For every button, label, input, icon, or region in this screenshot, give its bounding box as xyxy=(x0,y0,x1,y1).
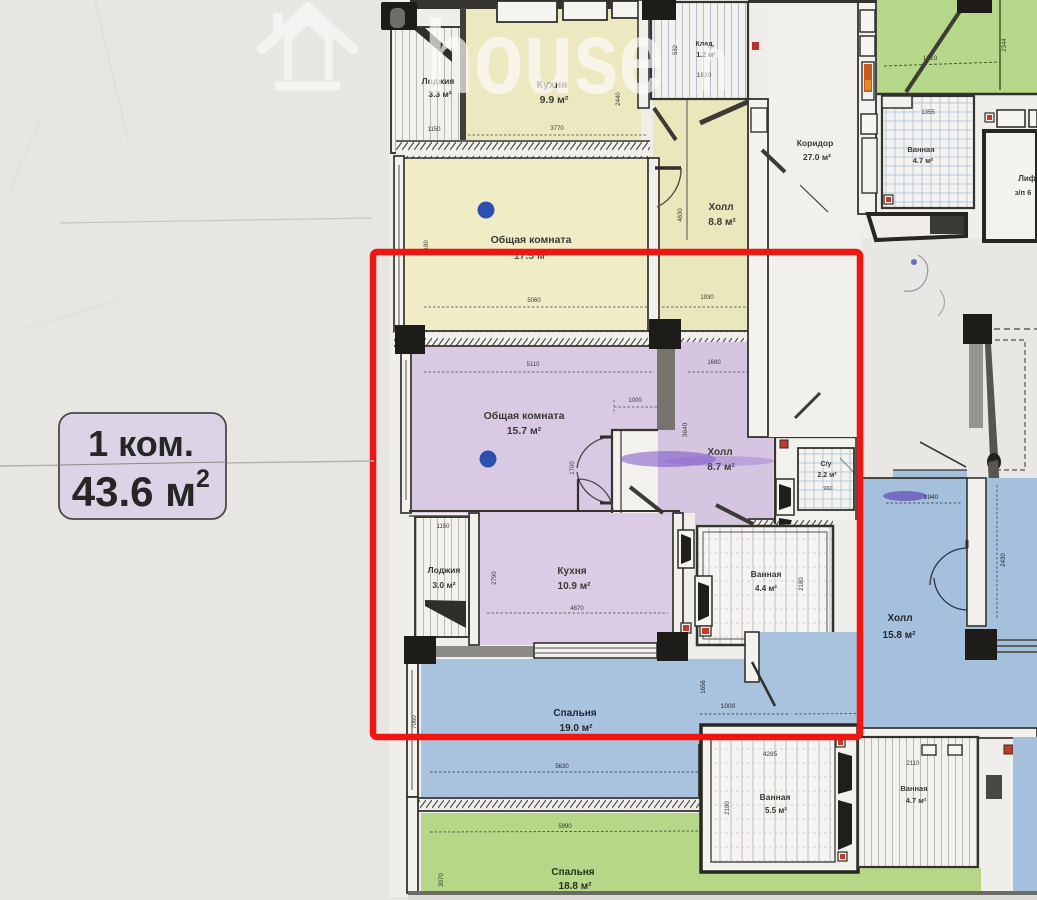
svg-text:5630: 5630 xyxy=(555,764,569,770)
svg-text:15.8 м²: 15.8 м² xyxy=(883,630,917,641)
svg-text:3.0 м²: 3.0 м² xyxy=(432,580,455,590)
svg-text:3070: 3070 xyxy=(439,873,445,887)
svg-text:Ванная: Ванная xyxy=(751,569,782,579)
svg-text:10.9 м²: 10.9 м² xyxy=(558,581,592,592)
svg-text:8.8 м²: 8.8 м² xyxy=(708,217,736,228)
svg-text:Ванная: Ванная xyxy=(760,792,791,802)
svg-text:Лоджия: Лоджия xyxy=(428,565,461,575)
svg-text:С/у: С/у xyxy=(821,461,832,468)
svg-text:2790: 2790 xyxy=(492,571,498,585)
svg-text:18.8 м²: 18.8 м² xyxy=(559,881,593,892)
svg-text:15.7 м²: 15.7 м² xyxy=(507,425,542,437)
svg-text:1355: 1355 xyxy=(921,110,935,116)
svg-text:3770: 3770 xyxy=(550,126,564,132)
svg-text:з/п 6: з/п 6 xyxy=(1015,188,1032,197)
svg-text:4285: 4285 xyxy=(763,751,778,758)
svg-text:2430: 2430 xyxy=(1001,553,1007,567)
svg-text:960: 960 xyxy=(823,486,832,492)
svg-text:19.0 м²: 19.0 м² xyxy=(560,723,594,734)
svg-text:4.7 м²: 4.7 м² xyxy=(906,796,927,805)
svg-text:1150: 1150 xyxy=(428,127,442,133)
svg-text:3640: 3640 xyxy=(682,422,689,437)
svg-text:43.6 м: 43.6 м xyxy=(72,468,196,515)
svg-text:Лиф: Лиф xyxy=(1018,174,1036,183)
svg-text:1656: 1656 xyxy=(701,680,707,694)
svg-text:Спальня: Спальня xyxy=(553,708,596,719)
svg-text:Ванная: Ванная xyxy=(900,784,927,793)
svg-text:1000: 1000 xyxy=(721,703,736,710)
svg-text:2180: 2180 xyxy=(725,801,731,815)
svg-text:7060: 7060 xyxy=(412,715,418,729)
svg-text:2110: 2110 xyxy=(907,761,921,767)
svg-text:2.2 м²: 2.2 м² xyxy=(817,472,837,479)
svg-text:27.0 м²: 27.0 м² xyxy=(803,152,831,162)
svg-text:2: 2 xyxy=(196,465,210,493)
svg-text:5.5 м²: 5.5 м² xyxy=(765,806,787,815)
svg-text:Холл: Холл xyxy=(708,202,733,213)
svg-text:5060: 5060 xyxy=(527,298,541,304)
svg-text:5110: 5110 xyxy=(527,362,541,368)
svg-text:4870: 4870 xyxy=(570,606,584,612)
svg-text:1150: 1150 xyxy=(437,524,451,530)
svg-text:1 ком.: 1 ком. xyxy=(88,423,194,464)
svg-text:house: house xyxy=(424,0,664,116)
svg-text:1940: 1940 xyxy=(924,494,939,501)
svg-text:Ванная: Ванная xyxy=(907,145,934,154)
svg-text:1000: 1000 xyxy=(628,398,642,404)
svg-text:Спальня: Спальня xyxy=(551,867,594,878)
svg-text:Общая комната: Общая комната xyxy=(491,234,572,246)
svg-text:4.4 м²: 4.4 м² xyxy=(755,584,777,593)
svg-text:1680: 1680 xyxy=(707,360,721,366)
svg-text:1700: 1700 xyxy=(570,461,576,475)
svg-text:Холл: Холл xyxy=(887,613,912,624)
svg-text:532: 532 xyxy=(673,44,679,55)
svg-text:5990: 5990 xyxy=(558,824,572,830)
svg-text:1930: 1930 xyxy=(700,295,714,301)
svg-text:2180: 2180 xyxy=(799,577,805,591)
svg-text:Коридор: Коридор xyxy=(797,138,834,148)
svg-text:4630: 4630 xyxy=(678,208,684,222)
svg-text:4.7 м²: 4.7 м² xyxy=(913,156,934,165)
svg-text:2344: 2344 xyxy=(1002,38,1008,52)
svg-text:Кухня: Кухня xyxy=(557,566,586,577)
svg-text:Общая комната: Общая комната xyxy=(484,410,565,422)
